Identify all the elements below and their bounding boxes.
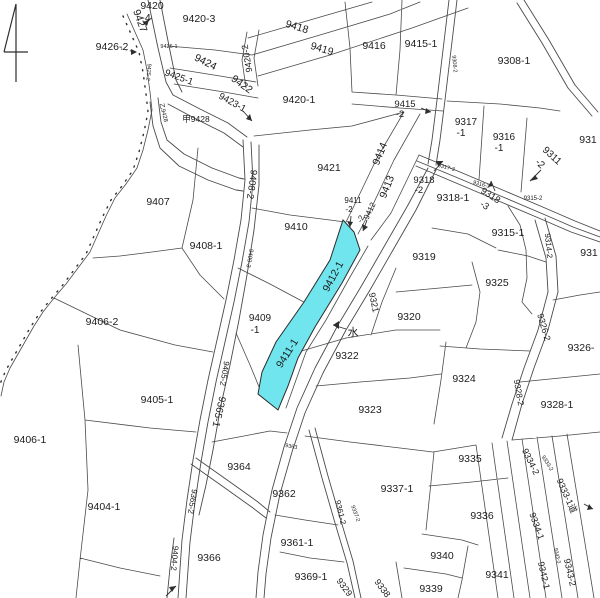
parcel-label: 9326-: [568, 342, 595, 354]
parcel-label: 9323: [358, 404, 382, 416]
parcel-label: 9422: [229, 73, 255, 97]
parcel-label: 9420-3: [183, 13, 216, 25]
parcel-label: 9369-1: [295, 571, 328, 583]
parcel-label: 9423-1: [217, 91, 248, 115]
parcel-label: 9343-2: [562, 558, 578, 588]
parcel-label: 9318-1: [437, 192, 470, 204]
parcel-label: 9324: [452, 373, 476, 385]
parcel-label: -2: [533, 157, 547, 171]
parcel-label: 9333-1道: [555, 476, 580, 514]
parcel-label: 9335: [458, 453, 482, 465]
parcel-label: 9362: [272, 488, 296, 500]
parcel-label: 9337-2: [349, 505, 361, 523]
cadastral-map-viewport: 9420-49420-394279426-29426-194249420-294…: [0, 0, 600, 598]
parcel-label: 9361-1: [281, 537, 314, 549]
parcel-label: 931: [580, 247, 598, 259]
parcel-label: 9409-3: [244, 248, 253, 268]
parcel-label: 9415-1: [405, 38, 438, 50]
parcel-label: 9325: [485, 277, 509, 289]
parcel-label: -2: [345, 205, 353, 214]
parcel-label: 9413: [377, 174, 397, 200]
parcel-label: 9320: [397, 311, 421, 323]
parcel-label: 9316: [493, 132, 516, 143]
parcel-label: 9411: [344, 196, 362, 205]
parcel-label: 9321: [367, 292, 381, 314]
parcel-label: 9319: [412, 251, 436, 263]
parcel-label: 9404-2: [169, 545, 180, 571]
parcel-label: 9366: [197, 552, 221, 564]
parcel-label: 9322: [335, 350, 359, 362]
parcel-label: 9336: [470, 510, 494, 522]
parcel-label: 9407: [146, 196, 170, 208]
parcel-label: 9409: [249, 313, 272, 324]
parcel-label: 9334-2: [520, 447, 541, 477]
parcel-label: 9326-2: [535, 312, 552, 342]
parcel-label: 9420-2: [240, 44, 255, 73]
cadastral-map: 9420-49420-394279426-29426-194249420-294…: [0, 0, 600, 598]
parcel-label: 9426-2: [96, 41, 129, 53]
parcel-label: 9339: [419, 583, 443, 595]
parcel-label: 9317: [455, 117, 478, 128]
parcel-label: 931: [579, 134, 597, 146]
parcel-label: 9361-2: [333, 499, 348, 526]
parcel-label: 9341: [485, 569, 509, 581]
parcel-label: -1: [457, 128, 466, 139]
parcel-label: 9424: [192, 52, 218, 73]
parcel-label: 9340: [430, 550, 454, 562]
parcel-label: 9337-1: [381, 483, 414, 495]
parcel-label: 9342-1: [536, 561, 552, 591]
parcel-label: 9425-2: [144, 63, 151, 81]
north-arrow-icon: [4, 4, 28, 82]
parcel-label: 9420: [140, 0, 164, 12]
parcel-label: 9338: [372, 577, 392, 598]
parcel-label: 9308-1: [498, 55, 531, 67]
parcel-label: 9314-2: [543, 233, 554, 259]
parcel-label: 9343-3: [552, 548, 561, 565]
parcel-label: -2: [396, 109, 404, 120]
parcel-label: 9410: [284, 221, 308, 233]
parcel-label: 9308-2: [450, 55, 457, 73]
parcel-label: 9315-1: [492, 227, 525, 239]
parcel-label: 9406-1: [14, 434, 47, 446]
parcel-label: 水: [348, 326, 359, 339]
parcel-label: 9364: [227, 461, 251, 473]
parcel-label: 9408-1: [190, 240, 223, 252]
parcel-label: 9420-1: [283, 94, 316, 106]
parcel-label: -1: [251, 325, 260, 336]
parcel-label: -2: [415, 185, 423, 196]
parcel-label: 9421: [317, 162, 341, 174]
parcel-label: 9414: [370, 141, 390, 167]
parcel-label: 9408-2: [244, 169, 259, 200]
parcel-label: 9334-1: [527, 511, 546, 541]
parcel-label: 9328-2: [512, 379, 526, 407]
parcel-label: 9329: [334, 576, 354, 598]
parcel-label: 9317-3: [437, 163, 455, 173]
parcel-label: 9363: [285, 443, 298, 451]
leader-arrow-lines: [143, 18, 593, 596]
parcel-label: 9405-1: [141, 394, 174, 406]
parcel-label: 9406-2: [86, 316, 119, 328]
parcel-label: 甲9428: [182, 114, 210, 124]
dotted-boundary-line: [0, 16, 148, 384]
parcel-label: 9404-1: [88, 501, 121, 513]
parcel-label: 9315-2: [524, 196, 543, 202]
arrowheads: [131, 20, 593, 592]
parcel-label: 9426-1: [160, 44, 177, 50]
parcel-label: 9416: [362, 40, 386, 52]
parcel-label: 9328-1: [541, 399, 574, 411]
parcel-label: -1: [495, 143, 504, 154]
parcel-label: 9419: [309, 40, 335, 58]
